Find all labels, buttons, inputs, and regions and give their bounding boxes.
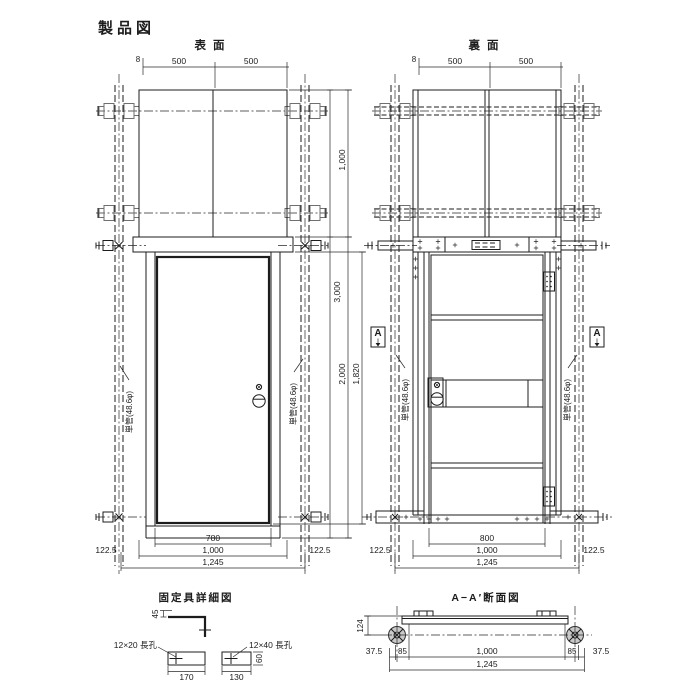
back-pipe-label-right: 単管(48.6φ)	[562, 379, 572, 421]
fixture-dim-60: 60	[255, 654, 264, 663]
front-dim-1245: 1,245	[202, 557, 224, 567]
back-dim-500-right: 500	[519, 56, 533, 66]
front-dim-1000-upper: 1,000	[337, 149, 347, 171]
drawing-canvas: 製品図 表面	[0, 0, 700, 700]
back-view: 裏面	[362, 38, 612, 574]
back-door	[413, 252, 561, 524]
front-dim-1000-bottom: 1,000	[202, 545, 224, 555]
section-dim-124: 124	[356, 619, 365, 633]
front-bottom-clamps	[96, 512, 328, 522]
back-dim-1225-right: 122.5	[583, 545, 605, 555]
section-panel	[402, 616, 568, 624]
section-dim-1245: 1,245	[476, 659, 498, 669]
section-detail-title: A−A′断面図	[451, 591, 520, 604]
front-dim-500-right: 500	[244, 56, 258, 66]
front-upper-panel	[139, 90, 287, 237]
back-view-label: 裏面	[468, 38, 506, 52]
back-dim-bottom: 800 1,000 1,245 122.5 122.5	[369, 528, 605, 571]
sheet-title: 製品図	[97, 19, 155, 37]
back-door-lock	[431, 382, 443, 405]
front-dim-780: 780	[206, 533, 220, 543]
fixture-dim-170: 170	[179, 672, 193, 682]
back-door-leaf	[431, 255, 543, 523]
fixture-slot-small-label: 12×20 長孔	[114, 640, 158, 650]
section-marker-left: A	[374, 328, 381, 339]
section-dim-85-right: 85	[568, 647, 577, 656]
front-dim-1225-left: 122.5	[95, 545, 117, 555]
front-pipe-label-right: 単管(48.6φ)	[288, 383, 298, 425]
section-dim-375-left: 37.5	[366, 646, 383, 656]
back-section-markers: A A	[371, 327, 604, 347]
front-pipe-label-left: 単管(48.6φ)	[124, 391, 134, 433]
front-view-label: 表面	[194, 38, 232, 52]
section-dim-85-left: 85	[398, 647, 407, 656]
back-dim-8: 8	[412, 55, 417, 64]
front-door-leaf	[157, 257, 269, 523]
product-drawing-sheet: 製品図 表面	[0, 0, 700, 700]
back-pipe-label-left: 単管(48.6φ)	[400, 379, 410, 421]
fixture-detail-title: 固定具詳細図	[159, 591, 234, 604]
front-dim-3000: 3,000	[332, 281, 342, 303]
fixture-dim-130: 130	[229, 672, 243, 682]
back-dim-top: 8 500 500	[412, 55, 563, 88]
front-dim-1820: 1,820	[351, 363, 361, 385]
front-door-lock	[253, 384, 265, 407]
front-dim-2000: 2,000	[337, 363, 347, 385]
front-dim-500-left: 500	[172, 56, 186, 66]
back-dim-1225-left: 122.5	[369, 545, 391, 555]
back-horizontal-pipes	[372, 104, 602, 221]
front-horizontal-pipes	[96, 104, 328, 221]
fixture-dim-45: 45	[151, 609, 160, 618]
front-door	[146, 252, 280, 538]
fixture-detail: 固定具詳細図 45 12×20 長孔 12×40 長孔 60 170 130	[114, 591, 293, 682]
back-lintel	[364, 237, 610, 252]
front-view: 表面	[95, 38, 366, 574]
front-dim-8: 8	[136, 55, 141, 64]
section-detail: A−A′断面図 124 37.5 85 1,000 85	[356, 591, 610, 672]
fixture-bracket-profile	[168, 617, 205, 637]
section-dim-1000: 1,000	[476, 646, 498, 656]
front-dim-top: 8 500 500	[136, 55, 289, 88]
section-dim-375-right: 37.5	[593, 646, 610, 656]
back-upper-panel	[413, 90, 561, 237]
back-dim-1245: 1,245	[476, 557, 498, 567]
front-dim-1225-right: 122.5	[309, 545, 331, 555]
front-pipe-labels: 単管(48.6φ) 単管(48.6φ)	[120, 359, 303, 433]
front-lintel	[96, 237, 328, 252]
back-dim-800: 800	[480, 533, 494, 543]
back-dim-1000-bottom: 1,000	[476, 545, 498, 555]
front-dim-bottom: 780 1,000 1,245 122.5 122.5	[95, 528, 331, 571]
back-dim-500-left: 500	[448, 56, 462, 66]
section-marker-right: A	[593, 328, 600, 339]
fixture-slot-large-label: 12×40 長孔	[249, 640, 293, 650]
